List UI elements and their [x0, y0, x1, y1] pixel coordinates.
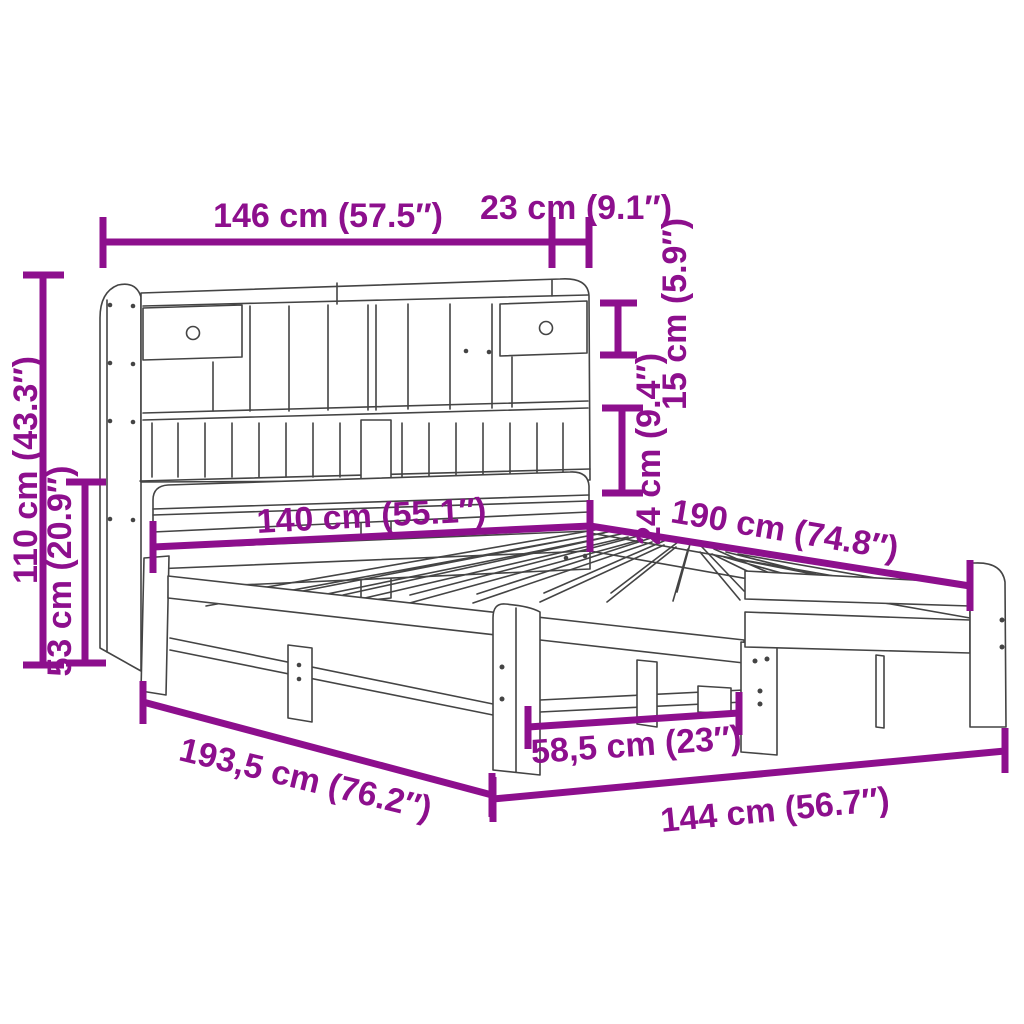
dim-headboard-total-width-label: 146 cm (57.5″)	[213, 197, 443, 235]
product-dimension-diagram: 146 cm (57.5″) 23 cm (9.1″) 15 cm (5.9″)…	[0, 0, 1024, 1024]
diagram-canvas: 146 cm (57.5″) 23 cm (9.1″) 15 cm (5.9″)…	[0, 0, 1024, 1024]
dim-frame-width-label: 144 cm (56.7″)	[659, 780, 891, 840]
rear-right-leg	[876, 655, 884, 728]
headboard-left-leg	[141, 556, 169, 695]
dim-frame-total-length: 193,5 cm (76.2″)	[143, 681, 492, 828]
dim-total-height-label: 110 cm (43.3″)	[7, 356, 45, 584]
support-foot-block	[698, 686, 731, 714]
footboard-top-rail	[745, 571, 970, 606]
footboard-far-leg	[741, 642, 777, 755]
mid-left-leg	[288, 645, 312, 722]
dim-bed-headboard-height-label: 53 cm (20.9″)	[41, 466, 79, 677]
right-drawer	[500, 301, 587, 356]
front-stretcher	[170, 638, 493, 715]
dim-headboard-depth: 23 cm (9.1″)	[480, 189, 672, 268]
dim-bed-headboard-height: 53 cm (20.9″)	[41, 466, 106, 677]
dim-mid-shelf-height: 24 cm (9.4″)	[602, 353, 668, 545]
footboard-bottom-rail	[745, 612, 970, 653]
near-side-rail	[168, 576, 744, 663]
dim-headboard-depth-label: 23 cm (9.1″)	[480, 189, 672, 227]
left-drawer	[143, 305, 242, 360]
headboard-side-panel	[100, 284, 141, 671]
dim-mid-shelf-height-label: 24 cm (9.4″)	[630, 353, 668, 545]
